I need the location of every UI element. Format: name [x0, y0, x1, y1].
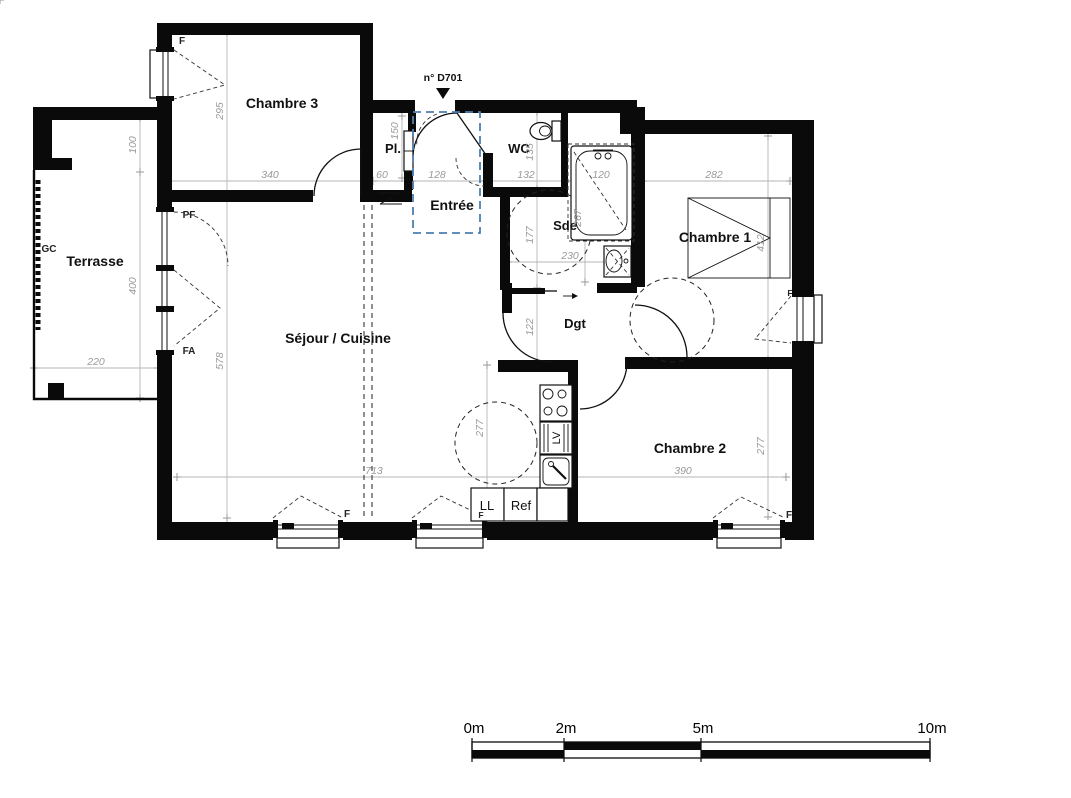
dim-220: 220: [86, 356, 105, 368]
dim-578: 578: [214, 352, 226, 370]
floor-plan: LV LL Ref n° D701 Chambre 3 Terrasse Séj…: [0, 0, 1071, 798]
window-terrasse-pf-fa: [156, 207, 228, 355]
refrigerator-box: Ref: [504, 488, 537, 521]
dim-390: 390: [674, 465, 692, 477]
room-label-placard: Pl.: [385, 141, 401, 156]
dim-400: 400: [127, 277, 139, 295]
dim-132: 132: [517, 169, 535, 181]
label-window-chambre3: F: [179, 36, 185, 47]
kitchen-sink-icon: [540, 455, 572, 488]
window-chambre2: [713, 497, 785, 548]
door-chambre1: [635, 305, 687, 357]
door-reference-arrow-icon: [436, 88, 450, 99]
door-placard: [404, 131, 413, 171]
label-window-chambre1: F: [787, 288, 792, 298]
dim-60: 60: [376, 169, 388, 181]
room-label-dgt: Dgt: [564, 316, 586, 331]
dimension-labels: 340 60 128 132 120 282 230 220 713 390 2…: [86, 102, 767, 477]
dim-230: 230: [560, 250, 579, 262]
scale-label-2m: 2m: [556, 720, 577, 737]
washing-machine-box: LL: [471, 488, 504, 521]
door-entrance: [413, 113, 486, 157]
dim-128: 128: [428, 169, 446, 181]
room-label-chambre3: Chambre 3: [246, 95, 319, 111]
label-porte-fenetre: PF: [183, 210, 196, 221]
label-window-sejour-1: F: [344, 509, 350, 520]
room-label-terrasse: Terrasse: [66, 253, 124, 269]
dim-120: 120: [592, 169, 610, 181]
dim-122: 122: [524, 318, 536, 336]
dim-177: 177: [524, 225, 536, 244]
refrigerator-label: Ref: [511, 498, 532, 513]
dim-100: 100: [127, 136, 139, 154]
label-garde-corps: GC: [42, 244, 57, 255]
scale-label-0m: 0m: [464, 720, 485, 737]
dim-277-chambre2: 277: [755, 436, 767, 456]
entry-zone-highlight: [413, 112, 480, 233]
door-reference: n° D701: [424, 72, 463, 99]
window-sejour-1: [273, 496, 343, 548]
scale-label-10m: 10m: [917, 720, 946, 737]
label-window-chambre2: F: [786, 510, 792, 521]
counter-box: [537, 488, 568, 521]
dim-340: 340: [261, 169, 279, 181]
dim-282: 282: [704, 169, 723, 181]
toilet-icon: [530, 121, 561, 141]
scale-bar: 0m 2m 5m 10m: [464, 720, 947, 762]
door-chambre3: [314, 149, 361, 196]
stove-icon: [540, 385, 572, 421]
room-label-sejour: Séjour / Cuisine: [285, 330, 391, 346]
room-label-entree: Entrée: [430, 197, 474, 213]
dim-150: 150: [389, 122, 401, 140]
window-chambre1: [755, 292, 822, 346]
dim-713: 713: [365, 465, 383, 477]
dim-277-kitchen: 277: [474, 418, 486, 438]
window-chambre3: [150, 47, 225, 101]
room-label-chambre1: Chambre 1: [679, 229, 752, 245]
sliding-door-sde: [507, 288, 578, 299]
room-label-chambre2: Chambre 2: [654, 440, 727, 456]
dim-295: 295: [214, 102, 226, 121]
washbasin-icon: [604, 246, 631, 277]
door-chambre2: [580, 362, 627, 409]
door-reference-label: n° D701: [424, 72, 463, 84]
dishwasher-label: LV: [551, 431, 563, 444]
dishwasher-icon: LV: [540, 422, 572, 454]
label-window-sejour-2: F: [478, 510, 483, 520]
floor-plan-drawing: LV LL Ref n° D701 Chambre 3 Terrasse Séj…: [0, 0, 1071, 798]
scale-label-5m: 5m: [693, 720, 714, 737]
dim-135: 135: [524, 143, 536, 161]
label-fenetre-fa: FA: [183, 346, 196, 357]
dim-267: 267: [572, 208, 584, 228]
dim-412: 412: [755, 234, 767, 252]
